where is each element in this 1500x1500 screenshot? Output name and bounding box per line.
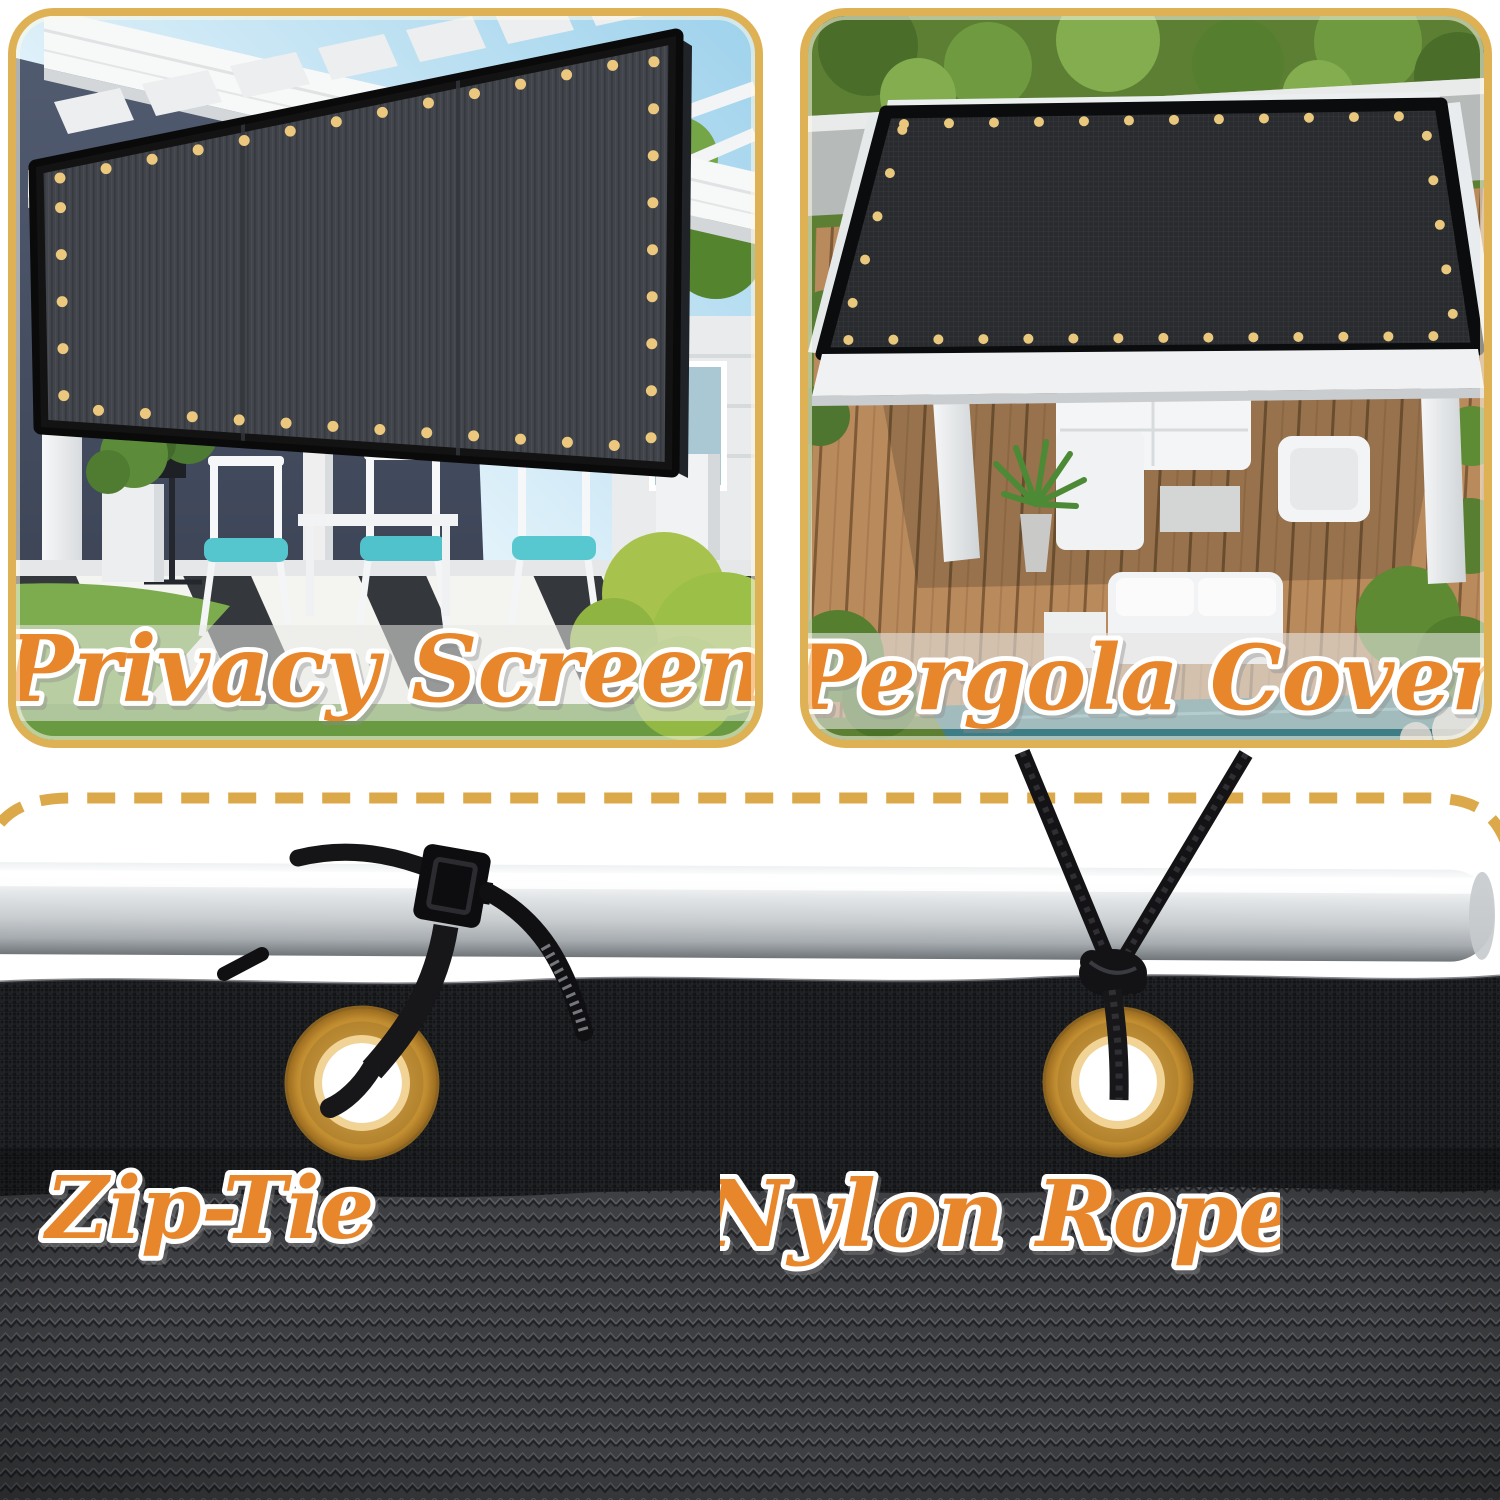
aluminum-rail-icon [0, 862, 1495, 962]
pergola-cover-photo-panel: Pergola Cover [800, 8, 1492, 748]
pergola-cover-label: Pergola Cover [808, 633, 1484, 729]
pergola-cover-photo [808, 16, 1484, 740]
privacy-caption: Privacy Screen [16, 625, 755, 721]
product-collage: { "panels": { "privacy": { "label": "Pri… [0, 0, 1500, 1500]
attachment-closeup-photo [0, 748, 1500, 1500]
pergola-caption: Pergola Cover [808, 633, 1484, 729]
privacy-screen-photo-panel: Privacy Screen [8, 8, 763, 748]
privacy-screen-label: Privacy Screen [16, 625, 755, 721]
pergola-caption-band: Pergola Cover [808, 633, 1484, 729]
pergola-mesh-cover [812, 104, 1484, 406]
privacy-caption-band: Privacy Screen [16, 625, 755, 721]
